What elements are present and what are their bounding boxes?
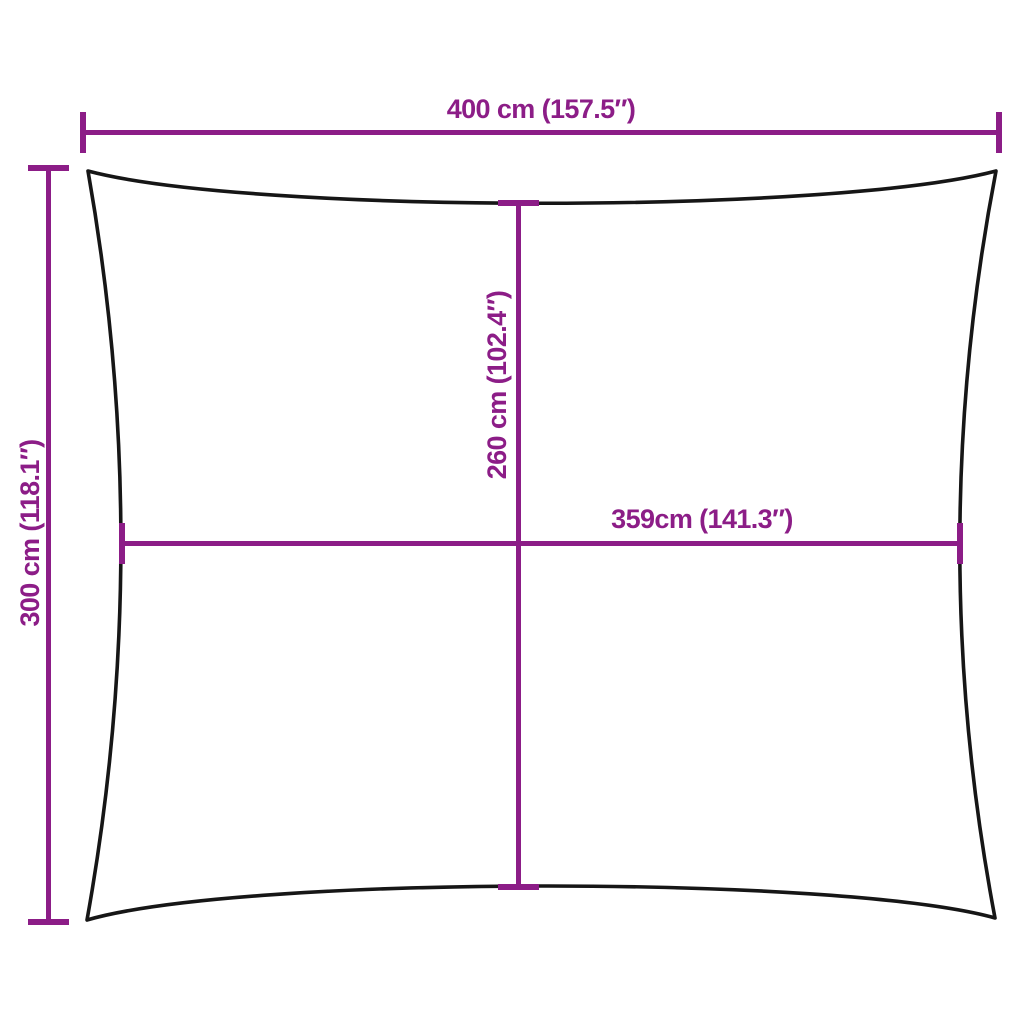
dimension-label-top-width: 400 cm (157.5″)	[83, 93, 999, 125]
shade-sail-outline	[0, 0, 1024, 1024]
dimension-end-tick-bottom	[28, 919, 69, 925]
dimension-end-tick-top	[28, 165, 69, 171]
shade-sail-dimension-diagram: 400 cm (157.5″) 300 cm (118.1″) 260 cm (…	[0, 0, 1024, 1024]
dimension-line	[46, 168, 51, 922]
dimension-end-tick-bottom	[498, 884, 539, 890]
dimension-line	[122, 541, 960, 546]
dimension-line	[83, 130, 999, 135]
dimension-end-tick-left	[119, 523, 125, 564]
dimension-end-tick-right	[957, 523, 963, 564]
dimension-end-tick-top	[498, 200, 539, 206]
dimension-label-left-height: 300 cm (118.1″)	[14, 439, 46, 626]
dimension-line	[516, 203, 521, 889]
dimension-label-inner-height: 260 cm (102.4″)	[481, 291, 513, 480]
dimension-label-inner-width: 359cm (141.3″)	[611, 503, 793, 535]
